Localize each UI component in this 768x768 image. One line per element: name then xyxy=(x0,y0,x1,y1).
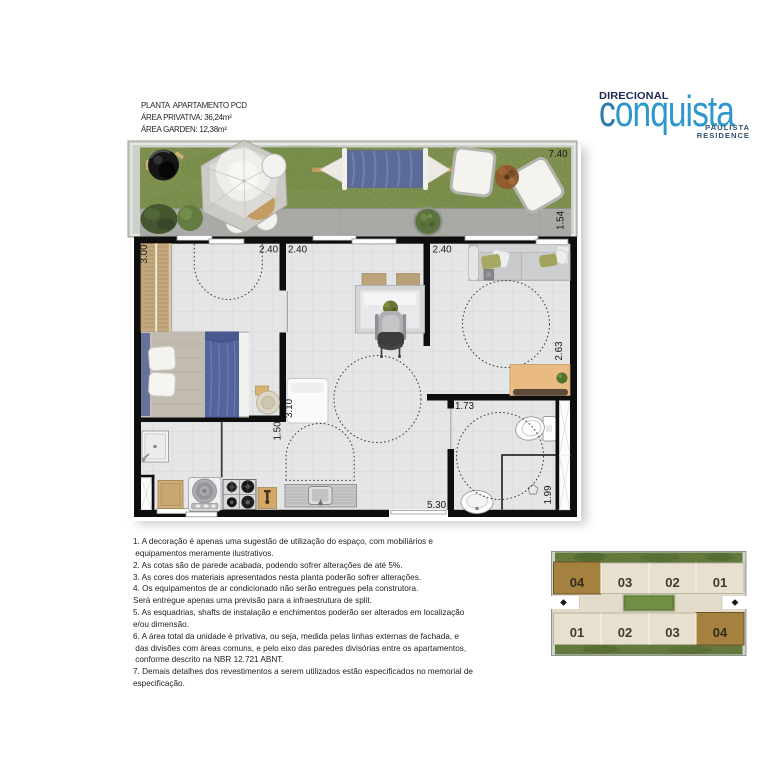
svg-text:03: 03 xyxy=(665,625,679,640)
svg-text:01: 01 xyxy=(570,625,584,640)
svg-text:2.63: 2.63 xyxy=(554,341,565,361)
svg-text:04: 04 xyxy=(570,575,585,590)
svg-text:04: 04 xyxy=(713,625,728,640)
svg-text:02: 02 xyxy=(665,575,679,590)
svg-text:02: 02 xyxy=(618,625,632,640)
svg-text:1.54: 1.54 xyxy=(556,210,567,230)
svg-text:2.40: 2.40 xyxy=(259,245,279,256)
svg-text:3.00: 3.00 xyxy=(139,244,150,264)
svg-text:1.99: 1.99 xyxy=(543,485,554,504)
svg-text:2.40: 2.40 xyxy=(288,245,308,256)
svg-text:2.40: 2.40 xyxy=(432,245,452,256)
svg-text:1.50: 1.50 xyxy=(273,421,284,441)
svg-text:7.40: 7.40 xyxy=(548,149,568,160)
svg-text:01: 01 xyxy=(713,575,727,590)
svg-text:3.10: 3.10 xyxy=(284,398,295,418)
svg-text:5.30: 5.30 xyxy=(427,500,447,511)
svg-text:03: 03 xyxy=(618,575,632,590)
svg-text:1.73: 1.73 xyxy=(455,401,475,412)
